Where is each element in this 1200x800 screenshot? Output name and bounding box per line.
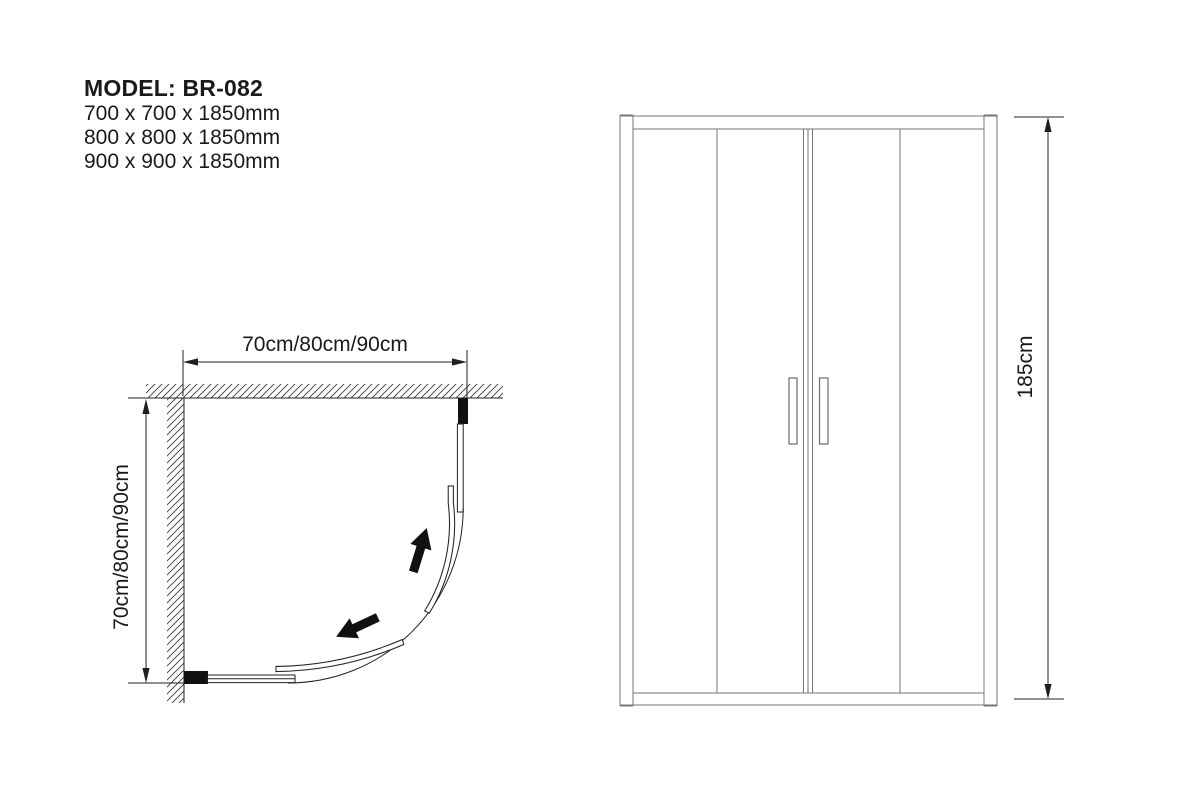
sliding-door-lower	[276, 639, 404, 672]
side-wall-hatch	[167, 398, 184, 703]
plan-depth-label: 70cm/80cm/90cm	[110, 464, 133, 630]
wall-bracket-top	[458, 398, 468, 424]
elevation-height-label: 185cm	[1014, 335, 1037, 398]
door-direction-arrow-left	[332, 607, 383, 646]
door-handle-right	[820, 378, 829, 444]
fixed-track-vertical	[457, 424, 463, 512]
elevation-view: 185cm	[620, 115, 1064, 706]
door-handle-left	[789, 378, 797, 444]
plan-view: 70cm/80cm/90cm 70cm/80cm/90cm	[110, 333, 503, 703]
sliding-door-upper	[424, 486, 454, 613]
door-direction-arrow-up	[403, 525, 437, 575]
diagram-canvas: MODEL: BR-082 700 x 700 x 1850mm 800 x 8…	[0, 0, 1200, 800]
center-meeting-stiles	[804, 129, 813, 693]
depth-arrowhead-top	[142, 399, 149, 414]
height-arrowhead-top	[1044, 117, 1051, 132]
width-arrowhead-left	[183, 358, 198, 365]
width-arrowhead-right	[452, 358, 467, 365]
wall-bracket-bottom	[184, 671, 208, 684]
technical-drawing: 70cm/80cm/90cm 70cm/80cm/90cm	[0, 0, 1200, 800]
width-dimension: 70cm/80cm/90cm	[183, 333, 467, 422]
height-arrowhead-bottom	[1044, 684, 1051, 699]
height-dimension: 185cm	[1014, 117, 1064, 699]
depth-arrowhead-bottom	[142, 668, 149, 683]
top-wall-hatch	[146, 384, 503, 398]
plan-width-label: 70cm/80cm/90cm	[242, 333, 408, 356]
